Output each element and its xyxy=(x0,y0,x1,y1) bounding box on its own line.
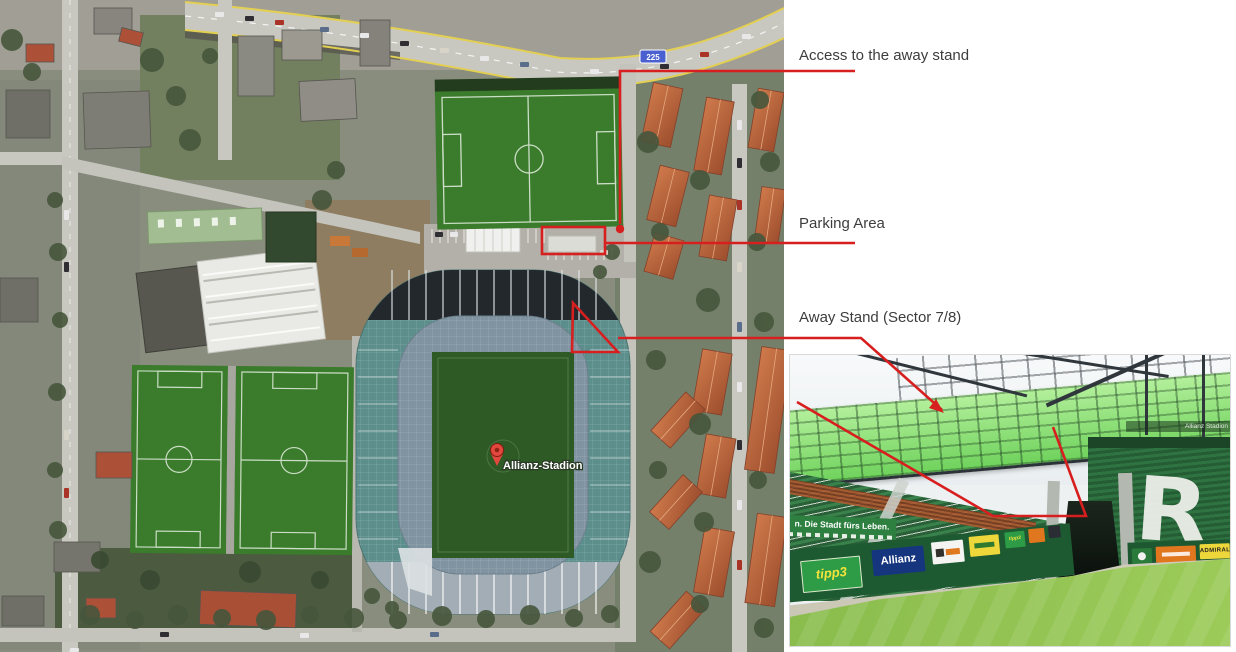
training-pitch-west-1 xyxy=(130,365,354,555)
clubhouse-green-roof xyxy=(147,208,262,244)
road-shield-number: 225 xyxy=(646,53,660,62)
label-away-stand-sector: Away Stand (Sector 7/8) xyxy=(799,309,961,326)
training-pitch-north xyxy=(435,76,624,229)
label-parking-area: Parking Area xyxy=(799,215,885,232)
ad-board-orange-right xyxy=(1156,545,1197,562)
container xyxy=(352,248,368,257)
stadium: Allianz-Stadion xyxy=(356,270,630,614)
stadium-map-label: Allianz-Stadion xyxy=(503,460,583,472)
container xyxy=(330,236,350,246)
label-access-away-stand: Access to the away stand xyxy=(799,47,969,64)
ad-board-allianz: Allianz xyxy=(871,545,925,576)
stadium-access-figure: Allianz-Stadion xyxy=(0,0,1236,652)
north-stand-fascia xyxy=(1088,437,1230,448)
ad-board-tipp3-small: tipp3 xyxy=(1004,531,1025,549)
road-shield: 225 xyxy=(640,50,666,63)
courts xyxy=(266,212,316,262)
ad-board-tipp3: tipp3 xyxy=(800,556,863,594)
aerial-map: Allianz-Stadion xyxy=(0,0,784,652)
away-stand-photo: R Allianz Stadion n. Die Stadt fürs Lebe… xyxy=(789,354,1231,647)
ad-board-white xyxy=(931,540,965,565)
ad-board-dark xyxy=(1048,525,1061,538)
ad-board-green-logo xyxy=(1132,548,1153,565)
away-entrance-structure xyxy=(548,236,596,252)
ad-board-orange xyxy=(1028,528,1045,543)
ad-board-admiral: ADMIRAL xyxy=(1200,543,1231,559)
stadium-pitch xyxy=(432,352,574,558)
stadium-sign-text: Allianz Stadion xyxy=(1126,421,1230,432)
ad-board-yellow xyxy=(969,534,1001,557)
